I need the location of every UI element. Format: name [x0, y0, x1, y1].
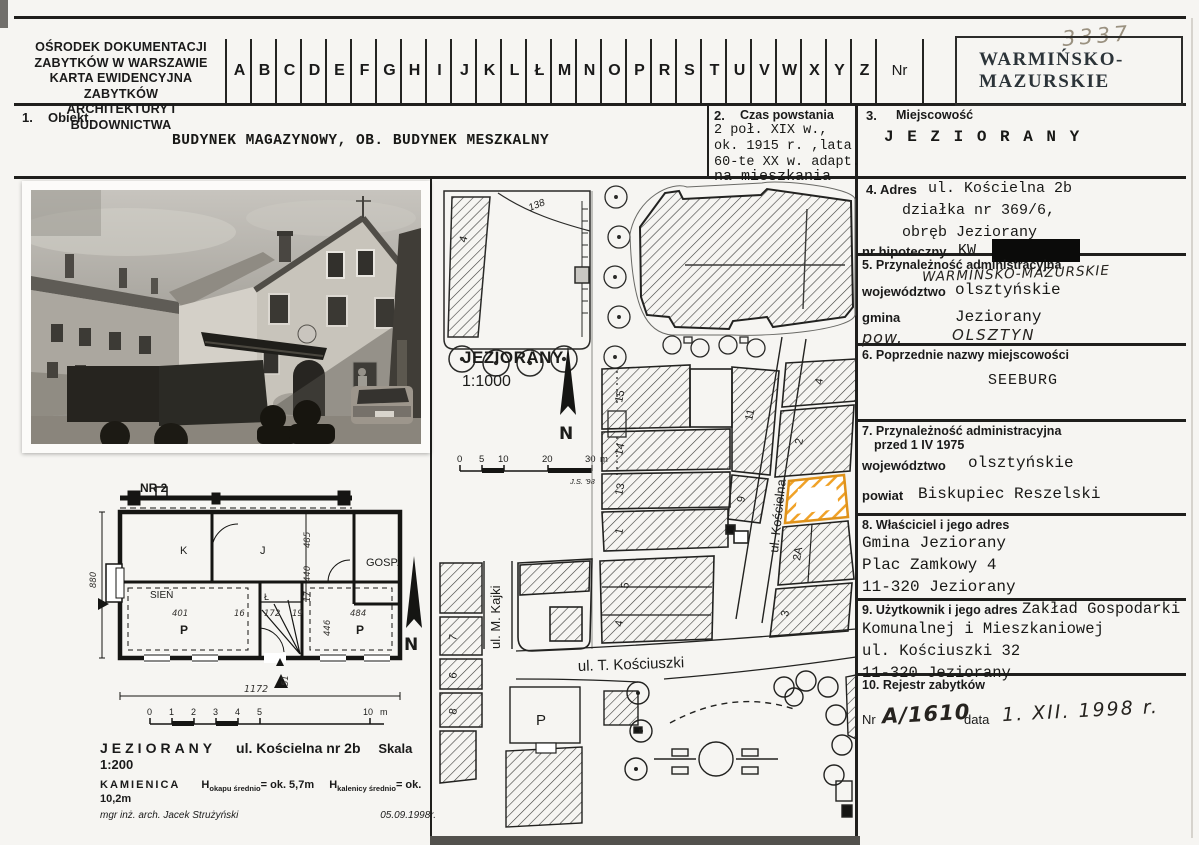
index-letter: O: [600, 39, 627, 103]
site-map: 4 138 JEZIORANY 1:1000 N 0: [432, 179, 856, 835]
room-label-gosp: GOSP.: [366, 557, 399, 569]
s2-line: ok. 1915 r. ,lata: [714, 139, 852, 154]
s10-title: 10. Rejestr zabytków: [862, 678, 985, 692]
s7-powiat-label: powiat: [862, 488, 903, 503]
s3-title: Miejscowość: [896, 108, 973, 122]
stamp-line: WARMIŃSKO-: [979, 49, 1181, 71]
voivodeship-stamp: WARMIŃSKO- MAZURSKIE: [955, 36, 1183, 106]
stamp-line: MAZURSKIE: [979, 71, 1181, 93]
caption-street: ul. Kościelna nr 2b: [236, 740, 360, 756]
dim-17: 17: [303, 591, 313, 602]
dim-485: 485: [303, 532, 313, 548]
s4-title: 4. Adres: [866, 182, 917, 197]
index-letter: Ł: [525, 39, 552, 103]
dim-401: 401: [172, 609, 188, 619]
org-line: ZABYTKÓW W WARSZAWIE: [18, 56, 224, 72]
dim-440: 440: [303, 566, 313, 582]
index-letter: B: [250, 39, 277, 103]
dim-1172: 1172: [244, 684, 268, 695]
index-letter: A: [225, 39, 252, 103]
index-letter: H: [400, 39, 427, 103]
scanned-card: OŚRODEK DOKUMENTACJI ZABYTKÓW W WARSZAWI…: [0, 0, 1199, 845]
map-label-15: 15: [613, 389, 627, 403]
s7-powiat-value: Biskupiec Reszelski: [918, 485, 1100, 503]
plan-scale-tick: 3: [213, 707, 218, 717]
map-scale: 1:1000: [462, 373, 511, 390]
index-letter: L: [500, 39, 527, 103]
dim-19: 19: [292, 609, 303, 619]
map-west-parcels: [440, 563, 482, 783]
dim-880: 880: [89, 572, 99, 588]
index-letter: Y: [825, 39, 852, 103]
index-letter: T: [700, 39, 727, 103]
divider-s1-s2: [707, 105, 709, 176]
room-label-l: Ł: [264, 592, 269, 602]
nr-cell: Nr: [875, 39, 924, 103]
index-letter: X: [800, 39, 827, 103]
s8-title: 8. Właściciel i jego adres: [862, 518, 1009, 532]
s3-number: 3.: [866, 108, 877, 123]
room-label-p1: P: [180, 623, 188, 637]
index-letter: C: [275, 39, 302, 103]
map-north-label: N: [559, 424, 573, 444]
index-letter: I: [425, 39, 452, 103]
plan-scale-tick: 10: [363, 707, 373, 717]
s10-nr-label: Nr: [862, 712, 876, 727]
map-scalebar: 0 5 10 20 30 m J.S. '98: [457, 454, 608, 486]
map-parking-label: P: [536, 712, 546, 729]
s2-number: 2.: [714, 108, 725, 123]
s1-title: Obiekt: [48, 110, 88, 125]
street-label-kosciuszki: ul. T. Kościuszki: [578, 654, 685, 675]
s8-owner-line: 11-320 Jeziorany: [862, 578, 1016, 596]
dim-172: 172: [264, 609, 280, 619]
s10-register-number-handwritten: A/1610: [881, 700, 971, 729]
plan-scale-tick: 1: [169, 707, 174, 717]
org-line: OŚRODEK DOKUMENTACJI: [18, 40, 224, 56]
plan-scale-tick: 5: [257, 707, 262, 717]
s7-title2: przed 1 IV 1975: [874, 438, 964, 452]
s10-data-label: data: [964, 712, 989, 727]
map-park-area: [506, 671, 856, 827]
building-photo: [22, 181, 430, 453]
map-label-14: 14: [613, 442, 627, 456]
floorplan-drawing: N NR 2 K J GOSP. SIEŃ Ł P P 880 401 16 1…: [88, 452, 432, 744]
s1-object-value: BUDYNEK MAGAZYNOWY, OB. BUDYNEK MESZKALN…: [172, 133, 549, 149]
scan-corner-mark: [0, 0, 8, 28]
plan-north-label: N: [404, 635, 418, 655]
sep-s6-s7: [856, 419, 1186, 422]
map-label-11: 11: [743, 408, 757, 422]
map-trees-below-church: [663, 336, 765, 357]
s6-previous-name: SEEBURG: [988, 372, 1058, 389]
s5-powiat-value-handwritten: OLSZTYN: [952, 326, 1036, 344]
s7-title: 7. Przynależność administracyjna: [862, 424, 1061, 438]
room-label-p2: P: [356, 623, 364, 637]
index-letter: D: [300, 39, 327, 103]
photo-illustration: [31, 190, 421, 444]
map-church: [630, 182, 855, 335]
dim-484: 484: [350, 609, 366, 619]
s2-title: Czas powstania: [740, 108, 834, 122]
map-scale-tick: 10: [498, 454, 509, 465]
caption-city: JEZIORANY: [100, 740, 216, 756]
s9-user-line: Komunalnej i Mieszkaniowej: [862, 620, 1104, 638]
plan-scale-tick: 0: [147, 707, 152, 717]
plan-scale-tick: 4: [235, 707, 240, 717]
index-letter: J: [450, 39, 477, 103]
plan-scale-tick: 2: [191, 707, 196, 717]
plan-caption: JEZIORANY ul. Kościelna nr 2b Skala 1:20…: [100, 740, 436, 821]
caption-h-okapu: Hokapu średnio= ok. 5,7m: [201, 779, 314, 791]
scan-bottom-strip: [430, 836, 860, 845]
room-label-sien: SIEŃ: [150, 588, 173, 601]
index-letter: E: [325, 39, 352, 103]
photo-car: [351, 386, 413, 424]
index-letter: F: [350, 39, 377, 103]
map-contour-138: 138: [527, 197, 547, 214]
caption-date: 05.09.1998r.: [380, 810, 436, 821]
street-label-kajki: ul. M. Kajki: [488, 585, 503, 649]
room-label-k: K: [180, 545, 188, 557]
index-letter: M: [550, 39, 577, 103]
index-letter: W: [775, 39, 802, 103]
map-title: JEZIORANY: [462, 348, 564, 367]
caption-building-type: KAMIENICA: [100, 779, 180, 791]
index-letter: K: [475, 39, 502, 103]
map-scale-tick: 5: [479, 454, 484, 465]
plan-north-arrow: N: [404, 556, 422, 655]
index-letter: S: [675, 39, 702, 103]
s8-owner-line: Plac Zamkowy 4: [862, 556, 996, 574]
caption-author: mgr inż. arch. Jacek Strużyński: [100, 810, 238, 821]
map-label-13: 13: [613, 482, 627, 496]
s4-address-line1: ul. Kościelna 2b: [928, 180, 1072, 197]
index-letter: N: [575, 39, 602, 103]
s4-kw-label: KW: [958, 242, 976, 259]
org-line: KARTA EWIDENCYJNA ZABYTKÓW: [18, 71, 224, 102]
map-midsouth-block: [600, 556, 714, 643]
plan-scalebar: 0 1 2 3 4 5 10 m: [147, 707, 388, 726]
s4-hipoteczny-label: nr hipoteczny: [862, 244, 947, 259]
scan-right-edge: [1191, 18, 1193, 838]
s1-number: 1.: [22, 110, 33, 125]
index-letter: V: [750, 39, 777, 103]
s9-title: 9. Użytkownik i jego adres: [862, 603, 1018, 617]
map-label-2a: 2A: [791, 546, 805, 562]
map-scale-tick: 20: [542, 454, 553, 465]
s10-register-date-handwritten: 1. XII. 1998 r.: [1002, 696, 1160, 726]
dim-446: 446: [323, 619, 333, 636]
s3-town-value: J E Z I O R A N Y: [884, 128, 1081, 146]
s4-address-line2: działka nr 369/6,: [902, 202, 1055, 219]
map-corner-block: [518, 559, 592, 651]
dim-16: 16: [234, 609, 245, 619]
plan-scale-unit: m: [380, 707, 388, 717]
s9-user-line: ul. Kościuszki 32: [862, 642, 1020, 660]
s9-user-inline: Zakład Gospodarki: [1022, 600, 1180, 618]
room-label-j: J: [260, 545, 266, 557]
s5-gmina-value: Jeziorany: [955, 308, 1041, 326]
index-letter: G: [375, 39, 402, 103]
sep-s7-s8: [856, 513, 1186, 516]
index-letter: U: [725, 39, 752, 103]
s2-line: 2 poł. XIX w.,: [714, 123, 827, 138]
s7-wojewodztwo-value: olsztyńskie: [968, 454, 1074, 472]
s5-gmina-label: gmina: [862, 310, 900, 325]
index-letter: R: [650, 39, 677, 103]
dim-51: 51: [281, 675, 291, 686]
s5-powiat-label-handwritten: pow.: [862, 328, 903, 347]
index-letter: P: [625, 39, 652, 103]
s5-wojewodztwo-label: województwo: [862, 284, 946, 299]
map-scale-tick: 30: [585, 454, 596, 465]
s5-wojewodztwo-value: olsztyńskie: [955, 281, 1061, 299]
plan-house-number: NR 2: [140, 481, 168, 495]
s6-title: 6. Poprzednie nazwy miejscowości: [862, 348, 1069, 362]
s8-owner-line: Gmina Jeziorany: [862, 534, 1006, 552]
highlighted-subject-parcel: [785, 475, 848, 523]
s7-wojewodztwo-label: województwo: [862, 458, 946, 473]
index-letter: Z: [850, 39, 877, 103]
card-top-border: [14, 16, 1186, 19]
s2-line: na mieszkania: [714, 168, 831, 185]
map-scale-tick: 0: [457, 454, 462, 465]
